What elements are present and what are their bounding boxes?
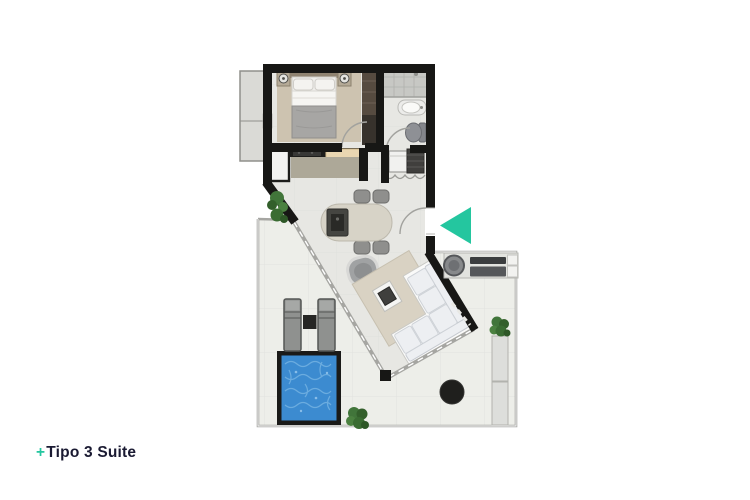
entrance-arrow-icon[interactable] [440,207,471,244]
kitchen [268,148,361,181]
plus-icon: + [36,444,45,461]
bedroom [277,70,377,147]
dining-chair [373,241,389,254]
dining-chair [373,190,389,203]
kitchen-island-counter [291,157,360,178]
grill-counter [444,253,518,278]
pool [277,351,341,425]
floor-plan [0,0,750,500]
nightstand-left [277,71,290,86]
bathroom-sink [398,100,426,115]
plant [346,407,369,429]
double-bed [290,70,338,138]
plan-title-text: Tipo 3 Suite [46,444,136,461]
terrace-bench [492,336,508,425]
wardrobe [362,70,377,145]
floorplan-page: +Tipo 3 Suite [0,0,750,500]
nightstand-right [338,71,351,86]
dining-chair [354,190,370,203]
facade-post [380,370,391,381]
plan-title: +Tipo 3 Suite [36,444,136,462]
lounge-chair [284,299,301,351]
washing-machine [389,151,407,172]
dining-chair [354,241,370,254]
counter-sink [470,257,506,264]
lounge-chair [318,299,335,351]
fire-pit [440,380,464,404]
toilet [406,123,427,142]
side-table [303,315,317,329]
